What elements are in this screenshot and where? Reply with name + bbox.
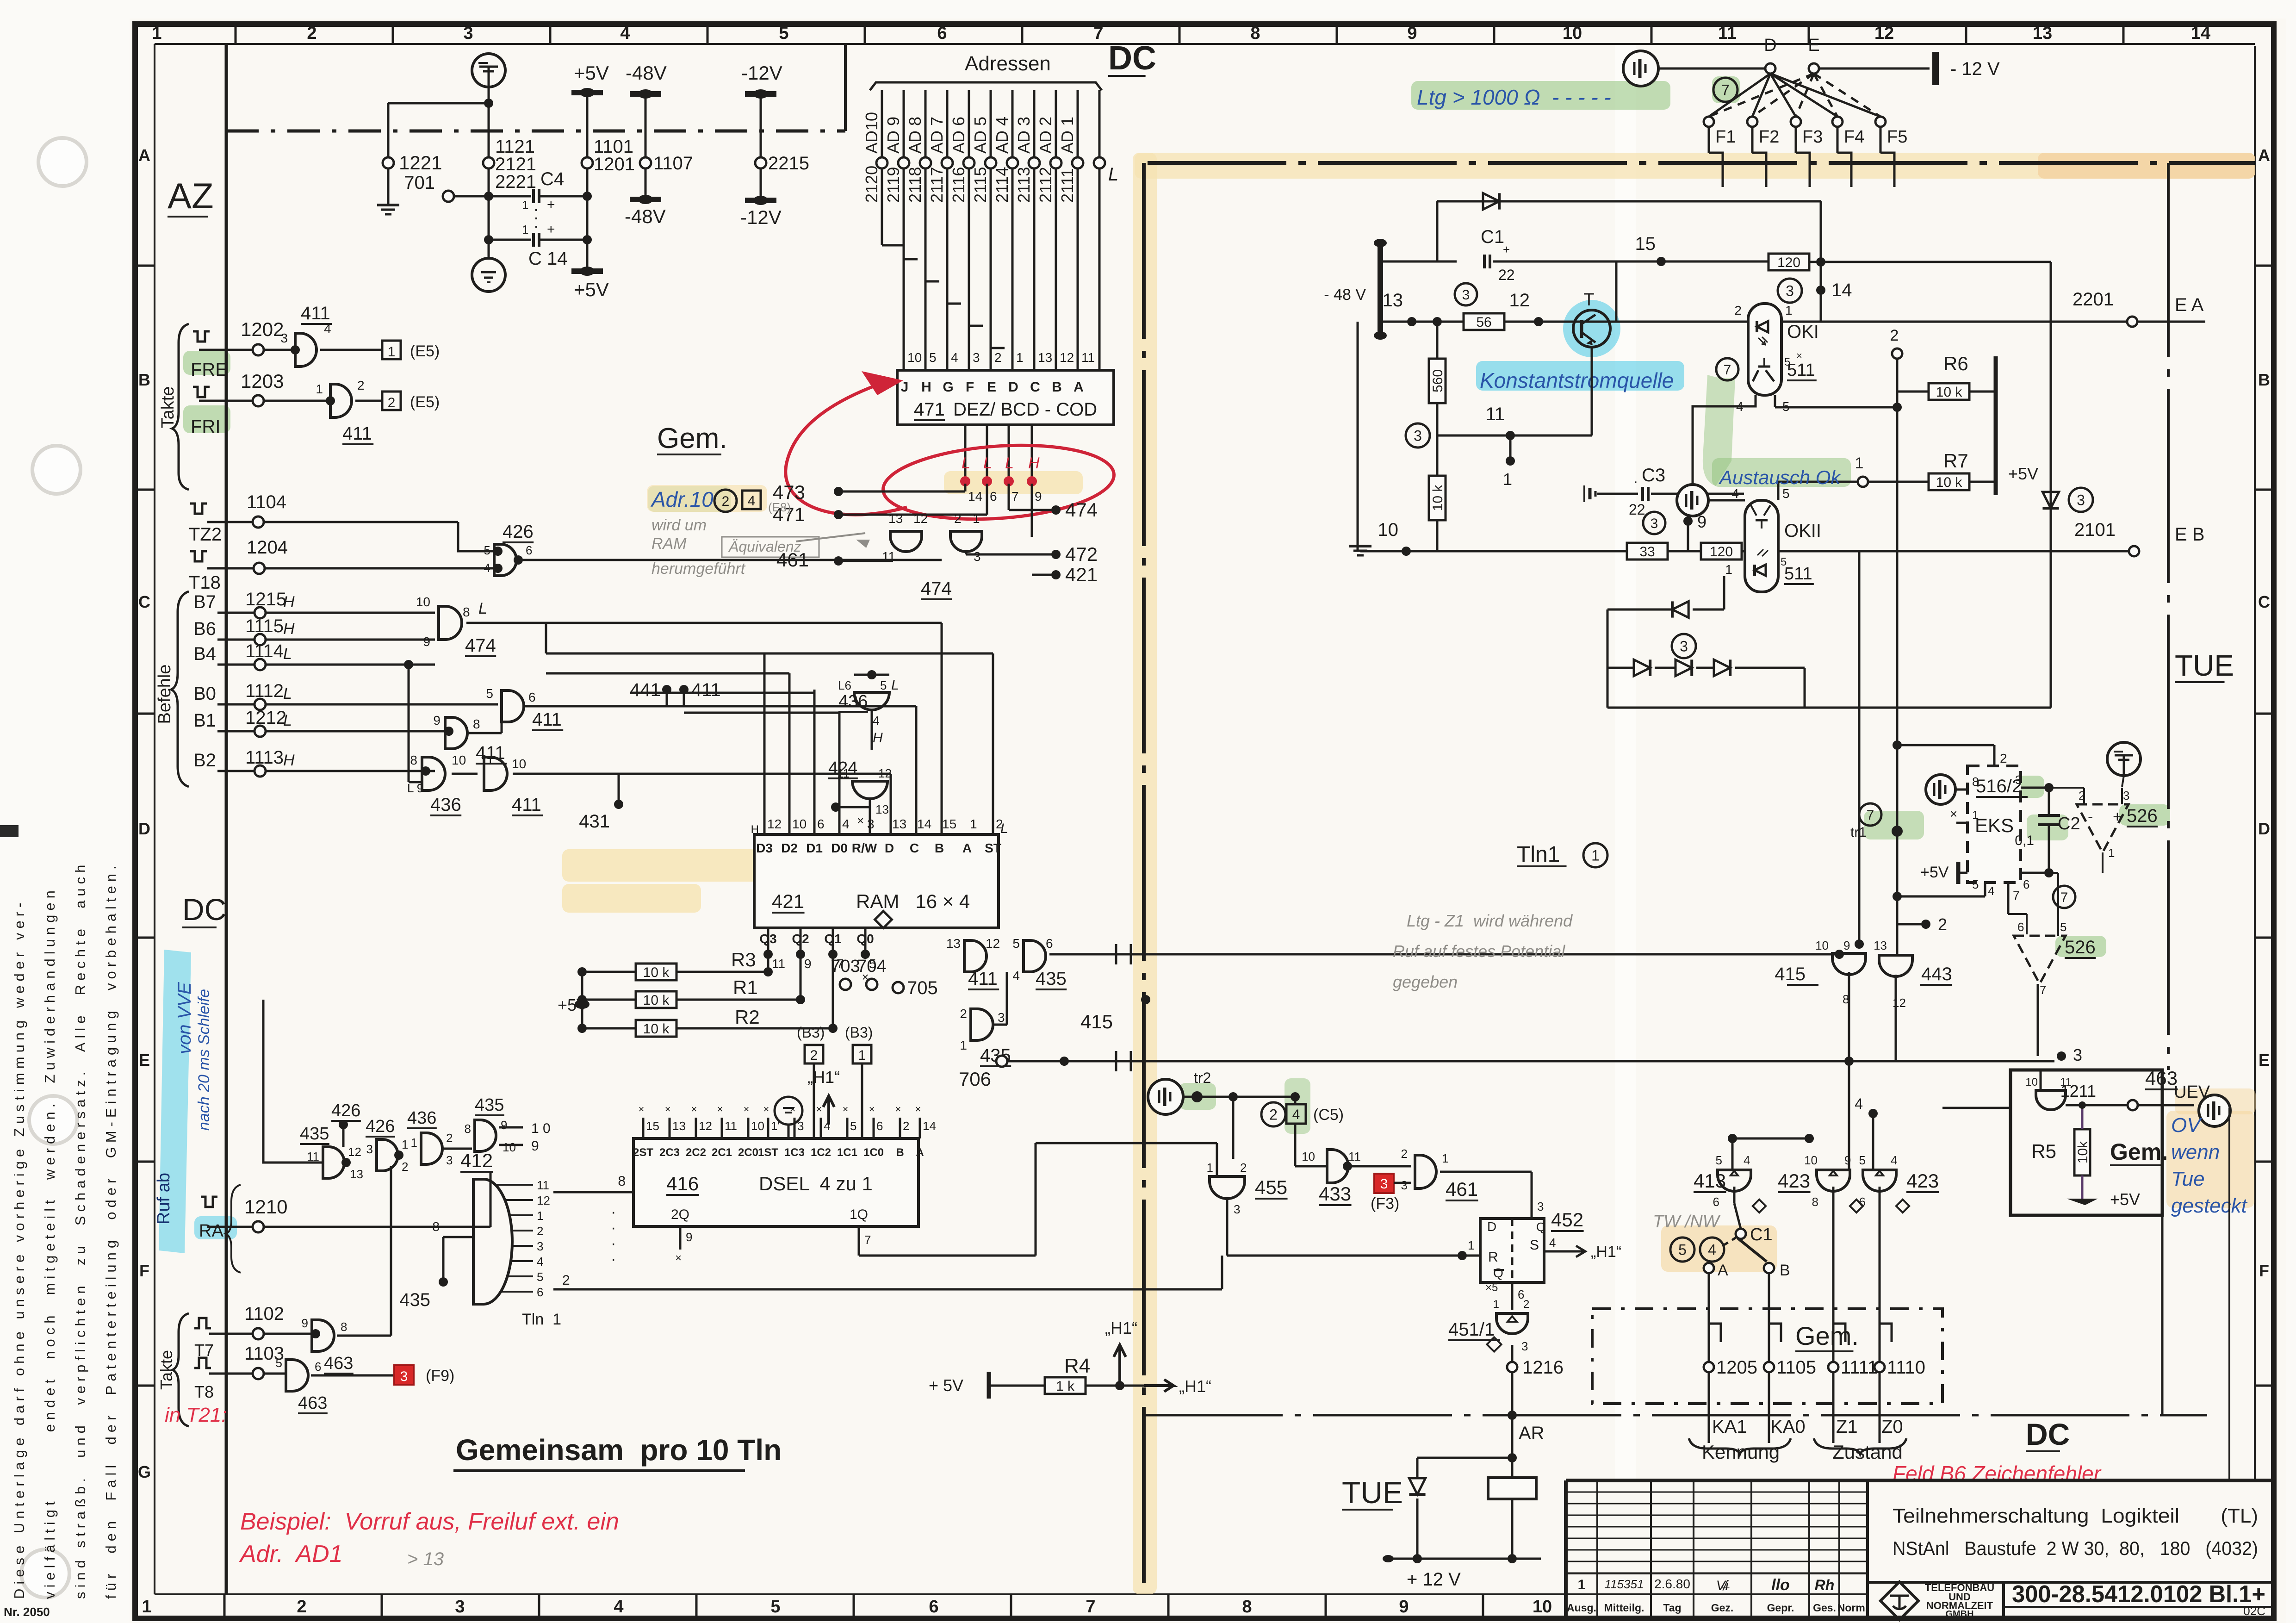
svg-text:706: 706 — [959, 1068, 991, 1090]
svg-text:F: F — [2259, 1261, 2269, 1280]
svg-text:5: 5 — [2060, 920, 2066, 934]
svg-text:OKII: OKII — [1784, 521, 1821, 541]
svg-text:426: 426 — [503, 522, 534, 542]
svg-text:G: G — [138, 1462, 151, 1481]
svg-text:Tln 1: Tln 1 — [522, 1311, 561, 1328]
svg-text:10 k: 10 k — [643, 1021, 670, 1037]
svg-text:R3: R3 — [731, 949, 756, 970]
svg-text:4: 4 — [1744, 1153, 1750, 1167]
svg-text:D1: D1 — [806, 841, 823, 855]
svg-text:7: 7 — [1093, 24, 1103, 43]
svg-text:DC: DC — [1108, 40, 1156, 77]
svg-text:Konstantstromquelle: Konstantstromquelle — [1480, 368, 1674, 392]
svg-text:D0: D0 — [831, 841, 848, 855]
svg-text:3: 3 — [1651, 516, 1658, 531]
svg-text:1212: 1212 — [245, 708, 286, 728]
svg-text:12: 12 — [878, 766, 892, 780]
svg-text:10: 10 — [503, 1140, 516, 1154]
svg-text:4: 4 — [951, 350, 958, 365]
svg-text:Ausg.: Ausg. — [1567, 1602, 1596, 1614]
svg-text:11: 11 — [480, 753, 494, 767]
svg-text:Adr. AD1: Adr. AD1 — [239, 1541, 343, 1567]
svg-text:DSEL 4 zu 1: DSEL 4 zu 1 — [759, 1173, 873, 1194]
svg-text:L: L — [1108, 164, 1118, 185]
svg-text:NStAnl Baustufe 2 W 30, 80: NStAnl Baustufe 2 W 30, 80, 180 (4032) — [1893, 1537, 2258, 1559]
svg-text:2: 2 — [297, 1597, 306, 1617]
svg-text:Beispiel: Vorruf aus, Freiluf: Beispiel: Vorruf aus, Freiluf ext. ein — [240, 1508, 619, 1535]
svg-text:1: 1 — [142, 1597, 151, 1617]
svg-text:435: 435 — [300, 1124, 329, 1144]
svg-text:AD10: AD10 — [862, 112, 881, 154]
svg-text:R: R — [1488, 1250, 1498, 1265]
svg-text:AR: AR — [1519, 1423, 1545, 1443]
svg-text:H: H — [1028, 454, 1040, 472]
svg-text:Ruf auf festes Potential: Ruf auf festes Potential — [1393, 942, 1565, 961]
svg-text:D: D — [138, 819, 150, 838]
svg-text:Ruf ab: Ruf ab — [154, 1173, 174, 1225]
svg-text:Tln1: Tln1 — [1517, 842, 1560, 867]
svg-text:12: 12 — [913, 511, 928, 526]
svg-text:TUE: TUE — [2175, 649, 2234, 682]
svg-text:0,1: 0,1 — [2015, 833, 2034, 848]
svg-text:A: A — [916, 1146, 924, 1159]
svg-text:F4: F4 — [1844, 127, 1864, 147]
svg-text:R/W: R/W — [852, 841, 877, 855]
svg-text:Rh: Rh — [1815, 1577, 1835, 1593]
svg-text:4: 4 — [748, 493, 756, 509]
svg-text:413: 413 — [1694, 1170, 1726, 1192]
svg-text:1: 1 — [537, 1209, 543, 1223]
svg-text:E: E — [987, 379, 996, 395]
svg-text:R4: R4 — [1064, 1355, 1090, 1377]
svg-text:B: B — [1780, 1262, 1790, 1279]
svg-text:705: 705 — [907, 978, 938, 998]
svg-text:4: 4 — [873, 714, 879, 728]
svg-text:Tag: Tag — [1663, 1602, 1681, 1614]
svg-text:6: 6 — [526, 543, 532, 557]
svg-text:B7: B7 — [193, 592, 216, 612]
svg-text:1ST: 1ST — [758, 1146, 778, 1159]
svg-text:7: 7 — [1724, 362, 1731, 378]
svg-text:3: 3 — [1234, 1202, 1240, 1216]
svg-text:9: 9 — [686, 1230, 692, 1244]
svg-text:7: 7 — [2013, 889, 2019, 902]
svg-text:3: 3 — [1462, 287, 1470, 303]
svg-text:11: 11 — [1081, 350, 1095, 365]
svg-text:2: 2 — [960, 1007, 967, 1021]
svg-text:-12V: -12V — [740, 206, 782, 228]
svg-text:Adressen: Adressen — [965, 52, 1051, 75]
svg-text:+5V: +5V — [1920, 864, 1949, 881]
svg-text:C: C — [1030, 379, 1040, 395]
svg-text:B2: B2 — [193, 750, 216, 771]
svg-text:+5V: +5V — [574, 279, 609, 300]
svg-text:2117: 2117 — [927, 167, 946, 203]
svg-text:4: 4 — [1549, 1236, 1556, 1250]
svg-text:C: C — [910, 841, 919, 855]
svg-text:DC: DC — [182, 892, 226, 927]
svg-text:E: E — [139, 1051, 150, 1070]
svg-text:2: 2 — [1240, 1161, 1247, 1175]
svg-text:H: H — [283, 620, 295, 638]
svg-text:×: × — [639, 1103, 645, 1115]
svg-text:L: L — [478, 600, 487, 617]
svg-text:463: 463 — [2145, 1067, 2178, 1089]
svg-text:3: 3 — [797, 1119, 804, 1133]
svg-text:(F9): (F9) — [426, 1367, 454, 1385]
svg-text:11: 11 — [772, 957, 785, 971]
svg-text:F: F — [139, 1261, 149, 1280]
svg-text:1210: 1210 — [244, 1196, 287, 1218]
svg-text:EKS: EKS — [1975, 815, 2014, 836]
svg-text:8: 8 — [473, 717, 480, 731]
svg-text:L: L — [1000, 821, 1008, 836]
svg-text:L: L — [983, 454, 992, 472]
svg-text:6: 6 — [876, 1119, 883, 1133]
svg-text:12: 12 — [767, 817, 782, 831]
svg-text:1: 1 — [1972, 808, 1979, 822]
svg-text:1104: 1104 — [247, 492, 286, 512]
svg-text:3: 3 — [998, 1010, 1005, 1025]
svg-text:5: 5 — [1859, 1153, 1866, 1167]
svg-text:+5V: +5V — [2110, 1190, 2140, 1209]
svg-text:(B3): (B3) — [845, 1024, 873, 1041]
svg-text:6: 6 — [929, 1597, 938, 1617]
svg-text:423: 423 — [1778, 1170, 1810, 1192]
svg-text:441: 441 — [630, 680, 661, 700]
svg-text:9: 9 — [433, 713, 441, 728]
svg-text:1211: 1211 — [2060, 1082, 2096, 1101]
svg-text:11: 11 — [1348, 1150, 1361, 1163]
svg-text:1205: 1205 — [1716, 1357, 1757, 1378]
svg-text:C: C — [138, 592, 150, 611]
svg-text:(E5): (E5) — [410, 342, 440, 360]
svg-text:×5: ×5 — [1485, 1281, 1498, 1294]
svg-text:1215: 1215 — [245, 589, 286, 609]
svg-text:×: × — [869, 1103, 875, 1115]
svg-text:B4: B4 — [193, 644, 216, 664]
svg-text:10: 10 — [792, 817, 807, 831]
svg-text:1221: 1221 — [399, 152, 442, 174]
svg-text:Gez.: Gez. — [1711, 1602, 1734, 1614]
svg-text:22: 22 — [1498, 267, 1515, 283]
svg-text:6: 6 — [528, 690, 536, 704]
svg-text:Z1: Z1 — [1836, 1417, 1858, 1437]
svg-text:F2: F2 — [1759, 127, 1779, 147]
svg-text:8: 8 — [1242, 1597, 1252, 1617]
svg-text:A: A — [2258, 146, 2270, 165]
svg-text:5: 5 — [1716, 1153, 1722, 1167]
svg-text:Mitteilg.: Mitteilg. — [1604, 1602, 1644, 1614]
svg-text:1ʹ: 1ʹ — [771, 1119, 780, 1133]
svg-text:H: H — [283, 593, 295, 611]
svg-text:Zustand: Zustand — [1832, 1441, 1903, 1463]
svg-text:D: D — [2258, 819, 2270, 838]
svg-text:·: · — [611, 1203, 616, 1221]
svg-text:560: 560 — [1430, 369, 1446, 392]
svg-text:2Q: 2Q — [671, 1207, 689, 1222]
svg-text:1202: 1202 — [241, 318, 284, 340]
svg-text:1C1: 1C1 — [837, 1146, 857, 1159]
svg-text:412: 412 — [460, 1150, 493, 1171]
svg-text:5: 5 — [929, 350, 937, 365]
svg-text:435: 435 — [1036, 969, 1067, 989]
svg-text:12: 12 — [1509, 290, 1530, 311]
svg-text:2201: 2201 — [2073, 289, 2114, 310]
svg-text:5: 5 — [486, 686, 493, 701]
svg-text:×: × — [857, 814, 864, 827]
svg-text:1: 1 — [973, 511, 980, 526]
svg-text:1C2: 1C2 — [811, 1146, 831, 1159]
svg-text:8: 8 — [341, 1320, 347, 1334]
svg-text:9: 9 — [1035, 489, 1042, 504]
svg-text:8: 8 — [1812, 1195, 1818, 1209]
svg-text:1111: 1111 — [1841, 1357, 1878, 1378]
svg-text:1113: 1113 — [245, 747, 284, 768]
svg-text:1110: 1110 — [1887, 1357, 1925, 1378]
svg-text:5: 5 — [537, 1270, 543, 1284]
svg-text:6: 6 — [2023, 877, 2029, 891]
svg-text:vielfältigt endet noch: vielfältigt endet noch mitgeteilt werden… — [42, 886, 58, 1599]
svg-text:+5V: +5V — [574, 62, 609, 84]
svg-text:D3: D3 — [756, 841, 773, 855]
svg-text:R1: R1 — [733, 976, 758, 998]
svg-text:2: 2 — [307, 24, 316, 43]
svg-text:6: 6 — [1859, 1195, 1866, 1209]
svg-text:9: 9 — [1399, 1597, 1409, 1617]
svg-text:511: 511 — [1784, 564, 1812, 584]
svg-text:sind straßb. und verpflichte: sind straßb. und verpflichten zu Schaden… — [72, 861, 88, 1599]
svg-text:T: T — [1583, 290, 1594, 310]
svg-text:×: × — [790, 1103, 796, 1115]
svg-text:3: 3 — [2077, 492, 2085, 509]
svg-text:×: × — [816, 1103, 822, 1115]
svg-text:7: 7 — [1011, 489, 1019, 504]
svg-text:2: 2 — [954, 511, 962, 526]
svg-text:526: 526 — [2127, 806, 2158, 826]
svg-text:1107: 1107 — [653, 153, 693, 174]
svg-text:5: 5 — [770, 1597, 780, 1617]
svg-text:436: 436 — [430, 795, 461, 815]
svg-text:H: H — [921, 379, 931, 395]
svg-text:463: 463 — [298, 1393, 327, 1413]
svg-text:2C2: 2C2 — [686, 1146, 706, 1159]
svg-text:(TL): (TL) — [2221, 1505, 2258, 1527]
svg-text:D2: D2 — [781, 841, 798, 855]
svg-text:5: 5 — [1782, 486, 1790, 501]
svg-text:13: 13 — [875, 802, 889, 816]
svg-text:411: 411 — [968, 969, 998, 989]
svg-text:tr2: tr2 — [1194, 1070, 1211, 1086]
svg-text:(E8): (E8) — [768, 500, 791, 514]
svg-text:L: L — [962, 454, 970, 472]
svg-text:×: × — [895, 1103, 901, 1115]
svg-text:Gem.: Gem. — [2110, 1139, 2168, 1165]
svg-text:33: 33 — [1639, 544, 1655, 560]
svg-text:1: 1 — [522, 223, 528, 236]
svg-text:411: 411 — [301, 303, 330, 323]
svg-text:15: 15 — [1635, 234, 1656, 254]
svg-text:Takte: Takte — [157, 1350, 176, 1390]
svg-text:AD 4: AD 4 — [993, 117, 1011, 154]
svg-text:1114: 1114 — [245, 641, 284, 661]
svg-text:474: 474 — [1065, 499, 1098, 521]
svg-text:Z0: Z0 — [1881, 1417, 1903, 1437]
svg-text:×: × — [665, 1103, 671, 1115]
svg-text:2: 2 — [1523, 1298, 1529, 1311]
svg-text:1: 1 — [152, 24, 161, 43]
svg-text:„H1“: „H1“ — [1105, 1318, 1137, 1337]
svg-text:+: + — [547, 197, 555, 212]
svg-text:10: 10 — [1804, 1153, 1818, 1167]
svg-text:C1: C1 — [1750, 1225, 1773, 1244]
svg-text:F: F — [966, 379, 974, 395]
svg-text:Gem.: Gem. — [1795, 1321, 1859, 1350]
svg-text:AD 3: AD 3 — [1014, 117, 1033, 154]
svg-text:1: 1 — [960, 1038, 967, 1052]
svg-text:G: G — [943, 379, 953, 395]
svg-text:RAM: RAM — [652, 535, 687, 553]
svg-text:wenn: wenn — [2171, 1141, 2220, 1163]
svg-text:B: B — [1052, 379, 1062, 395]
svg-text:+: + — [1503, 243, 1510, 256]
svg-text:2.6.80: 2.6.80 — [1654, 1577, 1690, 1591]
svg-text:KA1: KA1 — [1712, 1417, 1747, 1437]
svg-text:B6: B6 — [193, 619, 216, 639]
svg-text:Gemeinsam pro 10 Tln: Gemeinsam pro 10 Tln — [456, 1433, 782, 1467]
svg-text:526: 526 — [2065, 937, 2096, 958]
svg-text:12: 12 — [986, 936, 1000, 951]
svg-text:12: 12 — [1060, 350, 1074, 365]
svg-text:T18: T18 — [189, 572, 221, 593]
svg-text:7: 7 — [2040, 983, 2046, 997]
svg-text:431: 431 — [579, 811, 610, 832]
svg-text:5: 5 — [484, 543, 490, 557]
svg-text:3: 3 — [537, 1239, 543, 1253]
svg-text:3: 3 — [1537, 1200, 1544, 1213]
svg-text:11: 11 — [1485, 404, 1505, 424]
svg-text:11: 11 — [1718, 24, 1737, 43]
svg-text:+5V: +5V — [2008, 464, 2038, 483]
svg-text:8: 8 — [432, 1219, 440, 1234]
svg-text:452: 452 — [1551, 1209, 1583, 1231]
svg-text:426: 426 — [331, 1101, 360, 1120]
svg-text:9: 9 — [1407, 24, 1417, 43]
svg-text:E: E — [2259, 1051, 2270, 1070]
svg-text:„H1“: „H1“ — [1179, 1377, 1211, 1396]
svg-text:10 k: 10 k — [643, 993, 670, 1008]
svg-text:13: 13 — [1874, 939, 1887, 952]
svg-text:3: 3 — [400, 1369, 408, 1384]
svg-text:Gepr.: Gepr. — [1767, 1602, 1794, 1614]
svg-text:511: 511 — [1787, 361, 1815, 380]
svg-text:10: 10 — [907, 350, 922, 365]
svg-text:436: 436 — [838, 692, 868, 711]
svg-text:2101: 2101 — [2074, 520, 2116, 540]
svg-text:2221: 2221 — [495, 172, 536, 192]
svg-text:1204: 1204 — [247, 537, 288, 558]
svg-text:F3: F3 — [1802, 127, 1823, 147]
svg-text:C: C — [2258, 592, 2270, 611]
svg-text:3: 3 — [867, 817, 875, 831]
svg-text:4: 4 — [1012, 969, 1020, 983]
svg-text:tr1: tr1 — [1850, 825, 1867, 840]
svg-text:·: · — [1633, 474, 1638, 489]
svg-text:10 k: 10 k — [1430, 485, 1446, 511]
svg-text:14: 14 — [1831, 280, 1852, 300]
svg-text:AD 7: AD 7 — [927, 117, 946, 154]
svg-text:+ 5V: + 5V — [929, 1376, 963, 1395]
svg-text:13: 13 — [892, 817, 906, 831]
svg-text:FRE: FRE — [191, 360, 228, 380]
svg-text:6: 6 — [990, 489, 997, 504]
svg-text:von VVE: von VVE — [174, 982, 195, 1054]
svg-text:1: 1 — [1785, 303, 1793, 317]
svg-text:3: 3 — [2015, 773, 2022, 787]
svg-text:433: 433 — [1319, 1183, 1351, 1205]
svg-text:5: 5 — [1972, 877, 1979, 891]
svg-text:2C1: 2C1 — [712, 1146, 732, 1159]
svg-text:RA: RA — [199, 1221, 223, 1241]
svg-text:D: D — [1487, 1219, 1496, 1234]
svg-text:D: D — [1764, 36, 1776, 55]
svg-text:4: 4 — [1855, 1095, 1863, 1112]
svg-text:3: 3 — [446, 1153, 453, 1167]
svg-text:411: 411 — [512, 795, 541, 815]
svg-text:3: 3 — [463, 24, 473, 43]
svg-text:10: 10 — [1563, 24, 1582, 43]
svg-text:+: + — [547, 222, 555, 237]
svg-text:4: 4 — [1708, 1242, 1716, 1258]
svg-text:9: 9 — [423, 634, 430, 649]
svg-text:7: 7 — [2060, 890, 2068, 905]
svg-text:GMBH: GMBH — [1945, 1609, 1973, 1619]
svg-text:424: 424 — [828, 759, 857, 778]
svg-text:1: 1 — [1578, 1577, 1586, 1592]
svg-text:FRI: FRI — [191, 417, 220, 437]
svg-text:10: 10 — [751, 1119, 764, 1133]
svg-text:Q: Q — [1493, 1266, 1503, 1280]
svg-text:14: 14 — [917, 817, 931, 831]
svg-text:3: 3 — [1680, 638, 1688, 655]
svg-text:RAM 16 × 4: RAM 16 × 4 — [856, 890, 970, 912]
svg-text:451/1: 451/1 — [1448, 1319, 1495, 1340]
svg-text:×: × — [717, 1103, 723, 1115]
svg-text:3: 3 — [366, 1142, 373, 1156]
svg-text:AD 1: AD 1 — [1058, 117, 1077, 154]
svg-text:10: 10 — [416, 595, 430, 609]
svg-text:1: 1 — [388, 344, 396, 360]
svg-text:8: 8 — [463, 605, 470, 619]
svg-text:14: 14 — [923, 1119, 936, 1133]
svg-text:×: × — [1796, 350, 1802, 361]
svg-text:KA0: KA0 — [1770, 1417, 1806, 1437]
svg-text:1: 1 — [522, 198, 528, 212]
svg-text:02C: 02C — [2243, 1604, 2265, 1618]
svg-text:A: A — [962, 841, 972, 855]
svg-text:443: 443 — [1921, 964, 1952, 984]
svg-text:A: A — [1074, 379, 1084, 395]
svg-text:2: 2 — [722, 494, 730, 509]
svg-text:E A: E A — [2175, 295, 2204, 315]
svg-text:2: 2 — [562, 1273, 570, 1288]
svg-text:3: 3 — [1414, 428, 1422, 444]
svg-text:ST: ST — [985, 841, 1001, 855]
svg-text:H: H — [283, 752, 295, 769]
svg-text:L: L — [1005, 454, 1014, 472]
svg-text:H: H — [873, 730, 883, 746]
svg-text:10: 10 — [2025, 1076, 2038, 1088]
